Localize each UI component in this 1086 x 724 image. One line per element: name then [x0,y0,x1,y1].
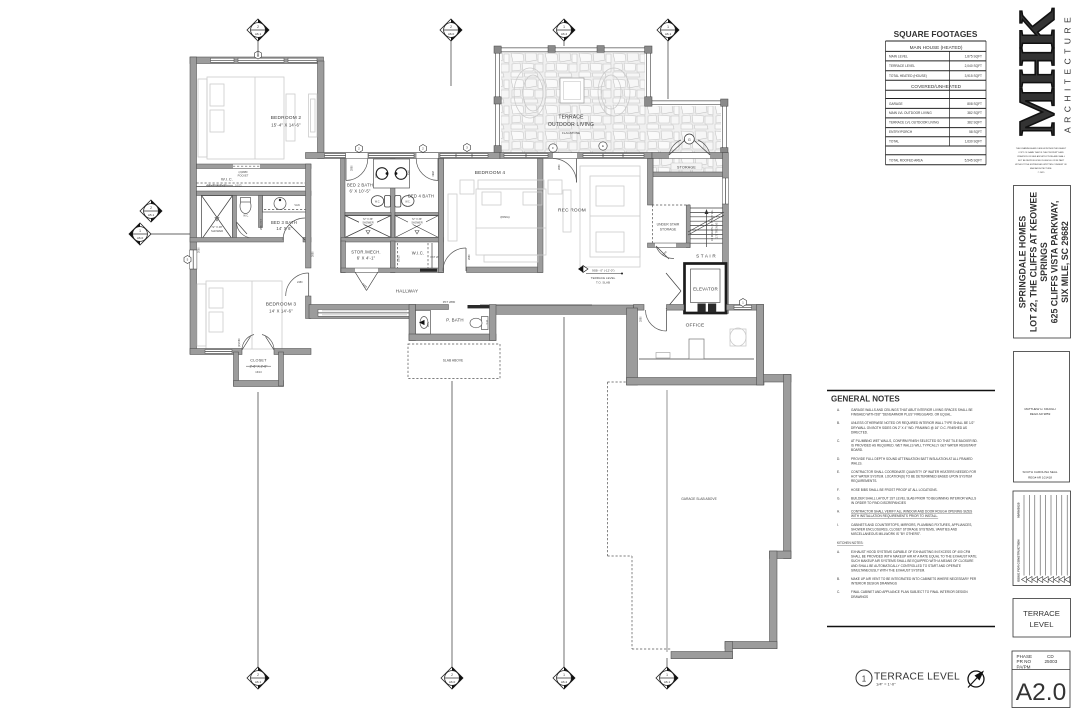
svg-text:GARAGE SLAB ABOVE: GARAGE SLAB ABOVE [681,497,717,501]
svg-text:BED 2 BATH: BED 2 BATH [347,183,373,188]
svg-text:STORAGE: STORAGE [660,228,677,232]
svg-text:COPY OF SAME THAT IS THE PROPE: COPY OF SAME THAT IS THE PROPERTY AND [1018,151,1064,154]
svg-text:BEDROOM 2: BEDROOM 2 [271,115,302,121]
svg-text:1: 1 [139,229,141,233]
svg-text:A2.0: A2.0 [1016,679,1066,706]
svg-text:TOTAL: TOTAL [889,140,899,144]
svg-text:14' X 14'-6": 14' X 14'-6" [269,309,293,314]
svg-text:18/13: 18/13 [397,255,401,262]
svg-text:© 2025: © 2025 [1038,171,1046,174]
svg-text:B.: B. [837,577,840,581]
svg-text:11'-7" X 2'-1": 11'-7" X 2'-1" [207,184,227,188]
svg-text:MAIN HOUSE (HEATED): MAIN HOUSE (HEATED) [910,45,963,50]
svg-text:2: 2 [150,206,152,210]
svg-text:625 CLIFFS VISTA PARKWAY,: 625 CLIFFS VISTA PARKWAY, [1050,201,1060,324]
svg-text:1/4" = 1'-0": 1/4" = 1'-0" [876,682,896,687]
svg-text:2: 2 [451,673,453,677]
svg-text:72" X 36": 72" X 36" [363,218,374,221]
svg-text:PROVIDE FULL DEPTH SOUND ATTEN: PROVIDE FULL DEPTH SOUND ATTENUATION BAT… [851,457,973,461]
svg-text:MISCELLANEOUS MILLWORK IS "BY: MISCELLANEOUS MILLWORK IS "BY OTHERS". [851,532,921,536]
svg-text:TOTAL HEATED (HOUSE): TOTAL HEATED (HOUSE) [889,74,927,78]
svg-text:C.: C. [837,439,840,443]
svg-text:A6.2: A6.2 [561,680,568,684]
svg-text:PHASE: PHASE [1017,654,1033,659]
svg-text:STORAGE: STORAGE [677,166,696,170]
svg-text:W.C.: W.C. [405,200,411,203]
svg-text:TOTAL ROOFED AREA: TOTAL ROOFED AREA [889,158,924,162]
svg-text:EXHAUST HOOD SYSTEMS CAPABLE O: EXHAUST HOOD SYSTEMS CAPABLE OF EXHAUSTI… [851,550,971,554]
svg-text:VAN: VAN [407,170,411,175]
svg-text:G: G [688,137,691,142]
svg-text:BOARD.: BOARD. [851,448,863,452]
svg-text:6' X 4'-1": 6' X 4'-1" [357,256,376,261]
svg-text:GENERAL NOTES: GENERAL NOTES [831,395,900,404]
svg-text:WITH INSTALLATION REQUIREMENTS: WITH INSTALLATION REQUIREMENTS PRIOR TO … [851,514,938,518]
svg-text:1: 1 [563,673,565,677]
svg-text:VAN: VAN [374,173,378,178]
svg-text:1,875 SQFT: 1,875 SQFT [965,55,982,59]
svg-text:2: 2 [450,25,452,29]
svg-text:15'-4" X 14'-6": 15'-4" X 14'-6" [271,123,301,128]
svg-text:STOR./MECH.: STOR./MECH. [351,250,381,255]
svg-text:E.: E. [837,470,840,474]
svg-text:(2)2880: (2)2880 [239,170,248,174]
svg-text:LOT 22, THE CLIFFS AT KEOWEE: LOT 22, THE CLIFFS AT KEOWEE [1029,192,1039,332]
svg-text:OFFICE: OFFICE [686,323,705,329]
svg-text:A6.1: A6.1 [665,32,672,36]
svg-text:PA/PM: PA/PM [1017,665,1031,670]
svg-text:GARAGE: GARAGE [889,102,903,106]
svg-text:3,915 SQFT: 3,915 SQFT [965,74,982,78]
svg-text:2480: 2480 [297,281,303,284]
svg-text:THE DRAWINGS AND DESIGN WITHIN: THE DRAWINGS AND DESIGN WITHIN THIS SHEE… [1016,147,1067,150]
svg-text:808 SQFT: 808 SQFT [967,102,982,106]
svg-text:2,040 SQFT: 2,040 SQFT [965,64,982,68]
svg-text:S T A I R: S T A I R [696,254,716,259]
svg-text:05/09/2025: 05/09/2025 [1017,502,1021,518]
svg-text:A6.2: A6.2 [561,32,568,36]
svg-text:WALLS.: WALLS. [851,461,863,465]
svg-text:DRAWINGS: DRAWINGS [851,595,868,599]
svg-text:H.: H. [837,510,840,514]
svg-text:2680: 2680 [468,254,471,260]
svg-text:16/13: 16/13 [235,184,242,188]
svg-text:TERRACE LEVEL: TERRACE LEVEL [889,64,915,68]
svg-text:19 RISERS @ 7 5/16" EA.: 19 RISERS @ 7 5/16" EA. [710,209,714,241]
svg-text:382 SQFT: 382 SQFT [967,121,982,125]
svg-text:SLAB ABOVE: SLAB ABOVE [443,359,464,363]
svg-text:A6.0: A6.0 [449,680,456,684]
svg-text:CABINETS AND COUNTERTOPS, MIRR: CABINETS AND COUNTERTOPS, MIRRORS, PLUMB… [851,523,972,527]
svg-text:COVERED/UNHEATED: COVERED/UNHEATED [911,84,962,89]
svg-text:2680 PKT: 2680 PKT [260,218,263,230]
svg-text:W.C.: W.C. [243,214,249,218]
svg-text:1: 1 [862,675,867,684]
svg-text:T.O. SLAB: T.O. SLAB [596,281,610,285]
svg-text:VAN: VAN [427,322,430,327]
svg-text:KITCHEN NOTES:: KITCHEN NOTES: [837,541,863,545]
svg-text:CONTRACTOR SHALL VERIFY ALL WI: CONTRACTOR SHALL VERIFY ALL WINDOW AND D… [851,510,972,514]
svg-text:MHK ARCHITECTURE.: MHK ARCHITECTURE. [1030,167,1052,170]
svg-text:W.C.: W.C. [375,200,381,203]
svg-text:WITHOUT THE EXPRESSED WRITTEN: WITHOUT THE EXPRESSED WRITTEN CONSENT OF [1015,164,1068,166]
svg-text:(KING): (KING) [500,215,509,219]
svg-text:58 SQFT: 58 SQFT [969,130,982,134]
svg-text:CLOSET: CLOSET [250,359,267,363]
svg-text:BED 4 BATH: BED 4 BATH [408,194,434,199]
svg-text:TERRACE LVL OUTDOOR LIVING: TERRACE LVL OUTDOOR LIVING [889,121,939,125]
svg-text:(2)2080: (2)2080 [238,338,241,347]
svg-text:ARCHITECTURE: ARCHITECTURE [1063,13,1073,133]
svg-text:BED 3 BATH: BED 3 BATH [271,220,297,225]
svg-text:SHALL BE PROVIDED WITH MAKEUP: SHALL BE PROVIDED WITH MAKEUP AIR AT A R… [851,555,977,559]
svg-text:TERRACE: TERRACE [1023,609,1060,618]
svg-text:IN ORDER TO FIND DISCREPANCIES: IN ORDER TO FIND DISCREPANCIES [851,501,906,505]
svg-text:C.: C. [837,590,840,594]
svg-text:W.C.: W.C. [485,320,488,326]
svg-text:INTERIOR DESIGN DRAWINGS: INTERIOR DESIGN DRAWINGS [851,582,897,586]
svg-text:AT PLUMBING WET WALLS, CONFIRM: AT PLUMBING WET WALLS, CONFIRM FINISH SE… [851,439,978,443]
svg-text:UNLESS OTHERWISE NOTED OR REQU: UNLESS OTHERWISE NOTED OR REQUIRED INTER… [851,421,975,425]
svg-text:MAKE UP AIR VENT TO BE INTEGRA: MAKE UP AIR VENT TO BE INTEGRATED INTO C… [851,577,977,581]
svg-text:VAN: VAN [294,203,299,207]
svg-text:2880: 2880 [431,171,434,177]
svg-text:DIRECTED.: DIRECTED. [851,430,868,434]
svg-text:A6.1: A6.1 [255,680,262,684]
svg-text:A.: A. [837,550,840,554]
svg-text:ISSUE FOR CONSTRUCTION: ISSUE FOR CONSTRUCTION [1017,539,1021,582]
svg-text:SQUARE FOOTAGES: SQUARE FOOTAGES [894,29,978,39]
svg-text:I.: I. [837,523,839,527]
svg-text:SHOWER: SHOWER [411,221,422,224]
svg-text:A6.0: A6.0 [448,32,455,36]
svg-text:PKT 2880: PKT 2880 [443,300,456,304]
svg-text:AND SHALL BE AUTOMATICALLY CON: AND SHALL BE AUTOMATICALLY CONTROLLED TO… [851,564,961,568]
svg-text:W.I.C.: W.I.C. [412,251,425,256]
svg-text:F.: F. [837,488,840,492]
svg-text:TERRACE: TERRACE [558,115,584,121]
svg-text:SHOWER: SHOWER [211,229,223,233]
svg-text:25003: 25003 [1045,659,1058,664]
svg-text:REG# AR 9859: REG# AR 9859 [1030,412,1051,416]
svg-text:SUCH MAKEUP AIR SYSTEMS SHALL: SUCH MAKEUP AIR SYSTEMS SHALL BE EQUIPPE… [851,559,974,563]
svg-text:E: E [602,144,604,148]
svg-text:SPRINGS: SPRINGS [1039,242,1049,282]
svg-text:B.: B. [837,421,840,425]
svg-text:GARAGE WALLS AND CEILINGS THAT: GARAGE WALLS AND CEILINGS THAT ABUT INTE… [851,408,973,412]
svg-text:9SB - 0" (-12'-0"): 9SB - 0" (-12'-0") [592,269,615,273]
svg-text:BUILDER SHALL LAYOUT 1ST LEVEL: BUILDER SHALL LAYOUT 1ST LEVEL SLAB PRIO… [851,496,976,500]
svg-text:CREATION OF MHK ARCHITECTURE A: CREATION OF MHK ARCHITECTURE AND SHALL [1017,155,1066,158]
svg-text:CD: CD [1047,654,1054,659]
svg-text:SOUTH CAROLINA SEAL: SOUTH CAROLINA SEAL [1022,470,1057,474]
svg-text:2: 2 [257,673,259,677]
svg-text:MAIN LVL OUTDOOR LIVING: MAIN LVL OUTDOOR LIVING [889,111,932,115]
svg-text:2880: 2880 [640,316,643,322]
svg-text:A6.1: A6.1 [255,32,262,36]
svg-text:A.: A. [837,408,840,412]
svg-text:G.: G. [837,496,840,500]
svg-text:NOT BE REPRODUCED IN WHOLE OR: NOT BE REPRODUCED IN WHOLE OR IN PART [1018,159,1065,162]
svg-text:A6.1: A6.1 [664,680,671,684]
svg-text:2880: 2880 [351,165,354,171]
svg-text:LEVEL: LEVEL [1030,620,1055,629]
svg-text:D.: D. [837,457,840,461]
svg-text:SHOWER ENCLOSURES, CLOSET STOR: SHOWER ENCLOSURES, CLOSET STORAGE SYSTEM… [851,527,958,531]
svg-text:1: 1 [667,25,669,29]
svg-text:5,545 SQFT: 5,545 SQFT [965,158,982,162]
svg-text:CONTRACTOR SHALL COORDINATE QU: CONTRACTOR SHALL COORDINATE QUANTITY OF … [851,470,977,474]
svg-text:MAIN LEVEL: MAIN LEVEL [889,55,908,59]
svg-text:SPRINGDALE HOMES: SPRINGDALE HOMES [1018,216,1028,309]
svg-text:FLAGSTONE: FLAGSTONE [562,131,580,135]
svg-text:BEDROOM 4: BEDROOM 4 [475,170,506,176]
svg-text:IS PROVIDED AS REQUIRED. WET W: IS PROVIDED AS REQUIRED. WET WALLS WILL … [851,444,977,448]
svg-text:F: F [552,146,554,150]
svg-text:TERRACE LEVEL: TERRACE LEVEL [591,276,616,280]
svg-text:72" X 36": 72" X 36" [412,218,423,221]
svg-text:FINISHED WITH 5/8" "DENSARMOR: FINISHED WITH 5/8" "DENSARMOR PLUS" FIRE… [851,413,952,417]
svg-text:72" X 48": 72" X 48" [211,225,222,229]
svg-text:1,630 SQFT: 1,630 SQFT [965,140,982,144]
svg-text:UNDER STAIR: UNDER STAIR [657,223,680,227]
svg-text:A6.0: A6.0 [137,236,144,240]
svg-text:2'-6" X 2'-6": 2'-6" X 2'-6" [250,365,268,369]
svg-text:1: 1 [563,25,565,29]
svg-text:A5.1: A5.1 [148,213,155,217]
svg-text:SIX MILE, SC 29682: SIX MILE, SC 29682 [1060,221,1070,303]
svg-text:(17) TREADS: (17) TREADS [715,222,719,239]
svg-text:HOSE BIBS SHALL BE FROST PROOF: HOSE BIBS SHALL BE FROST PROOF AT ALL LO… [851,488,938,492]
svg-text:ENTRY/PORCH: ENTRY/PORCH [889,130,913,134]
svg-text:1: 1 [666,673,668,677]
svg-text:MHK: MHK [1009,7,1066,136]
svg-text:W.I.C.: W.I.C. [221,177,233,182]
svg-text:P. BATH: P. BATH [446,318,464,323]
svg-text:2680: 2680 [312,251,315,257]
svg-text:HOT WATER SYSTEM. LOCATION(S): HOT WATER SYSTEM. LOCATION(S) TO BE DETE… [851,475,972,479]
svg-text:REC ROOM: REC ROOM [558,208,586,214]
svg-text:DRYWALL ON BOTH SIDES ON 2" X: DRYWALL ON BOTH SIDES ON 2" X 4" WD. FRA… [851,426,967,430]
svg-text:SIMULTANEOUSLY WITH THE EXHAUS: SIMULTANEOUSLY WITH THE EXHAUST SYSTEM. [851,568,925,572]
svg-text:BEDROOM 3: BEDROOM 3 [266,302,297,308]
svg-text:16/13: 16/13 [255,370,262,374]
svg-text:ELEVATOR: ELEVATOR [693,287,718,292]
svg-text:REQUIREMENTS.: REQUIREMENTS. [851,479,877,483]
svg-text:MATTHEW H. KRAIGH: MATTHEW H. KRAIGH [1024,407,1055,411]
svg-text:2880: 2880 [558,164,561,170]
svg-text:2080: 2080 [198,247,201,253]
svg-text:REG# AR 101418: REG# AR 101418 [1028,476,1052,480]
svg-text:382 SQFT: 382 SQFT [967,111,982,115]
svg-text:PR NO: PR NO [1017,659,1032,664]
svg-text:14' X 6': 14' X 6' [276,226,291,231]
svg-text:POCKET: POCKET [238,173,249,177]
svg-text:FINAL CABINET AND APPLIANCE PL: FINAL CABINET AND APPLIANCE PLAN SUBJECT… [851,590,968,594]
svg-text:OUTDOOR LIVING: OUTDOOR LIVING [548,122,594,128]
svg-text:6' X 10'-5": 6' X 10'-5" [349,189,370,194]
svg-text:HALLWAY: HALLWAY [396,289,419,294]
svg-text:SHOWER: SHOWER [362,221,373,224]
svg-text:2: 2 [257,25,259,29]
